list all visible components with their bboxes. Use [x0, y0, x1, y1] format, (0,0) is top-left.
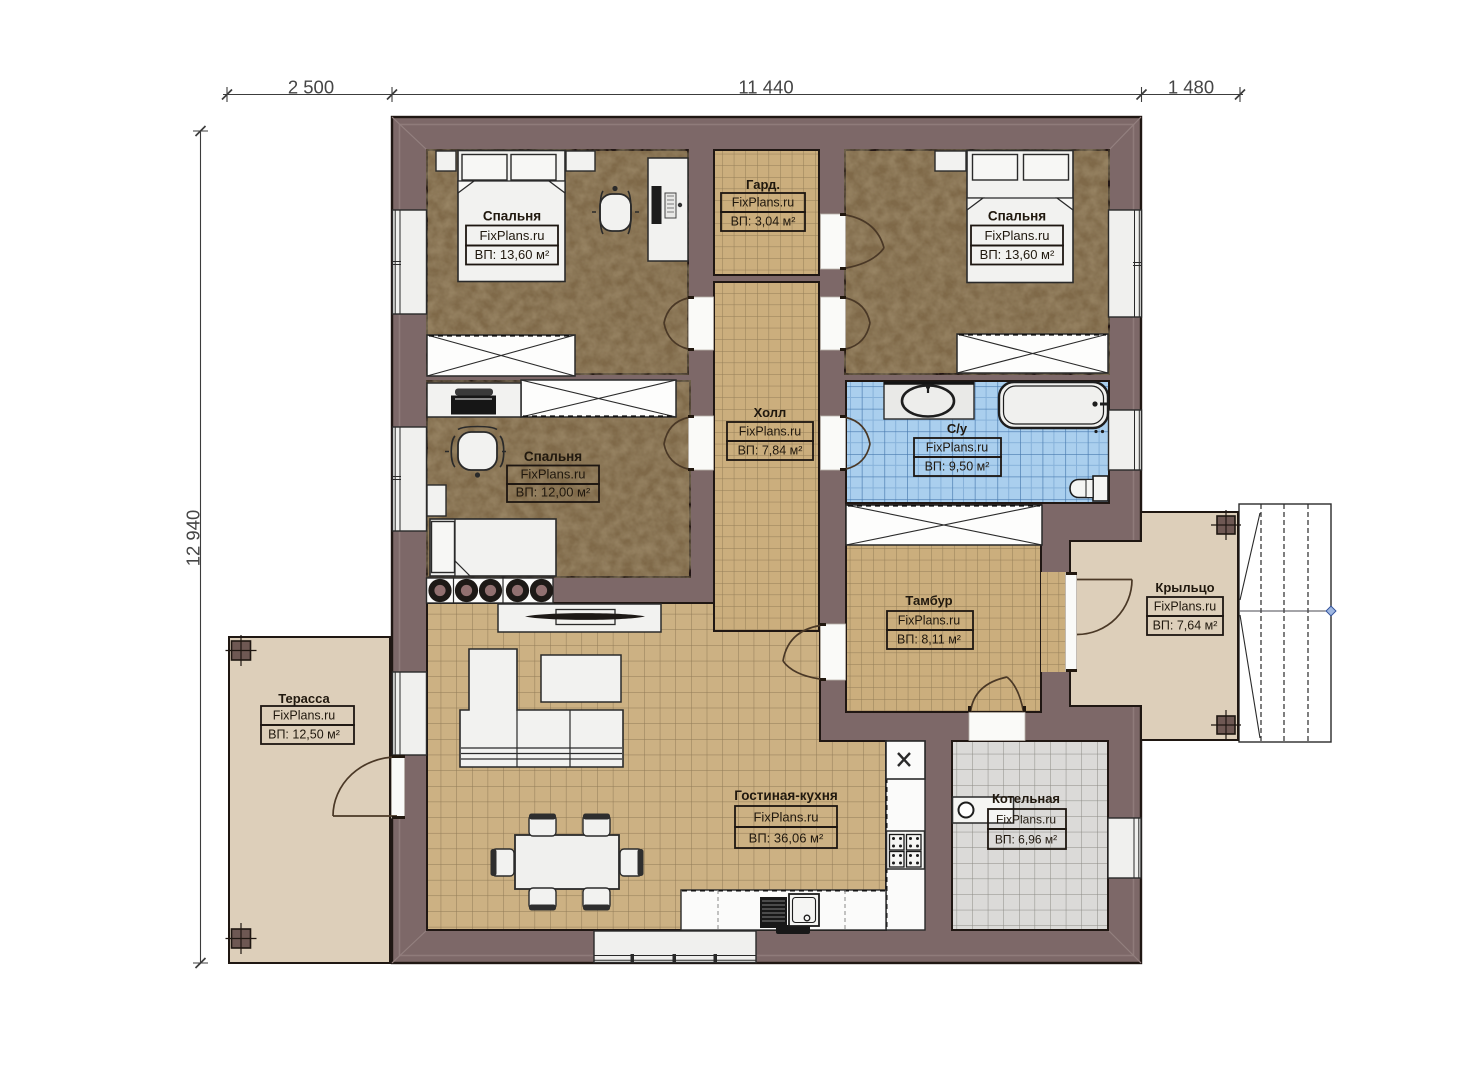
svg-text:Гостиная-кухня: Гостиная-кухня — [734, 788, 837, 803]
svg-text:С/у: С/у — [947, 421, 968, 436]
svg-text:ВП: 12,50 м²: ВП: 12,50 м² — [268, 728, 340, 742]
svg-text:ВП: 9,50 м²: ВП: 9,50 м² — [925, 460, 990, 474]
svg-text:FixPlans.ru: FixPlans.ru — [753, 810, 818, 825]
svg-text:ВП: 6,96 м²: ВП: 6,96 м² — [995, 833, 1057, 847]
svg-text:1 480: 1 480 — [1168, 77, 1214, 98]
svg-text:Спальня: Спальня — [988, 209, 1046, 224]
svg-text:FixPlans.ru: FixPlans.ru — [479, 228, 544, 243]
svg-text:ВП: 13,60 м²: ВП: 13,60 м² — [475, 247, 550, 262]
svg-text:Терасса: Терасса — [278, 691, 330, 706]
svg-text:ВП: 7,84 м²: ВП: 7,84 м² — [738, 444, 803, 458]
svg-text:FixPlans.ru: FixPlans.ru — [926, 441, 989, 455]
svg-text:Крыльцо: Крыльцо — [1155, 580, 1214, 595]
svg-text:ВП: 3,04 м²: ВП: 3,04 м² — [731, 215, 796, 229]
svg-text:FixPlans.ru: FixPlans.ru — [996, 813, 1056, 827]
svg-text:2 500: 2 500 — [288, 77, 334, 98]
svg-text:FixPlans.ru: FixPlans.ru — [739, 425, 802, 439]
svg-text:FixPlans.ru: FixPlans.ru — [732, 196, 795, 210]
svg-text:ВП: 12,00 м²: ВП: 12,00 м² — [516, 485, 591, 500]
svg-text:ВП: 36,06 м²: ВП: 36,06 м² — [749, 831, 824, 846]
svg-text:FixPlans.ru: FixPlans.ru — [898, 614, 961, 628]
svg-text:FixPlans.ru: FixPlans.ru — [520, 467, 585, 482]
svg-text:FixPlans.ru: FixPlans.ru — [984, 228, 1049, 243]
svg-text:Котельная: Котельная — [992, 791, 1060, 806]
svg-text:Холл: Холл — [754, 405, 787, 420]
svg-text:Гард.: Гард. — [746, 177, 780, 192]
svg-text:ВП: 7,64 м²: ВП: 7,64 м² — [1153, 619, 1218, 633]
svg-text:FixPlans.ru: FixPlans.ru — [1154, 600, 1217, 614]
svg-text:Спальня: Спальня — [524, 449, 582, 464]
svg-text:FixPlans.ru: FixPlans.ru — [273, 709, 336, 723]
svg-text:ВП: 8,11 м²: ВП: 8,11 м² — [897, 633, 961, 647]
svg-text:Спальня: Спальня — [483, 209, 541, 224]
svg-text:Тамбур: Тамбур — [905, 593, 952, 608]
svg-text:12 940: 12 940 — [183, 510, 204, 567]
svg-text:11 440: 11 440 — [738, 77, 793, 98]
svg-text:ВП: 13,60 м²: ВП: 13,60 м² — [980, 247, 1055, 262]
